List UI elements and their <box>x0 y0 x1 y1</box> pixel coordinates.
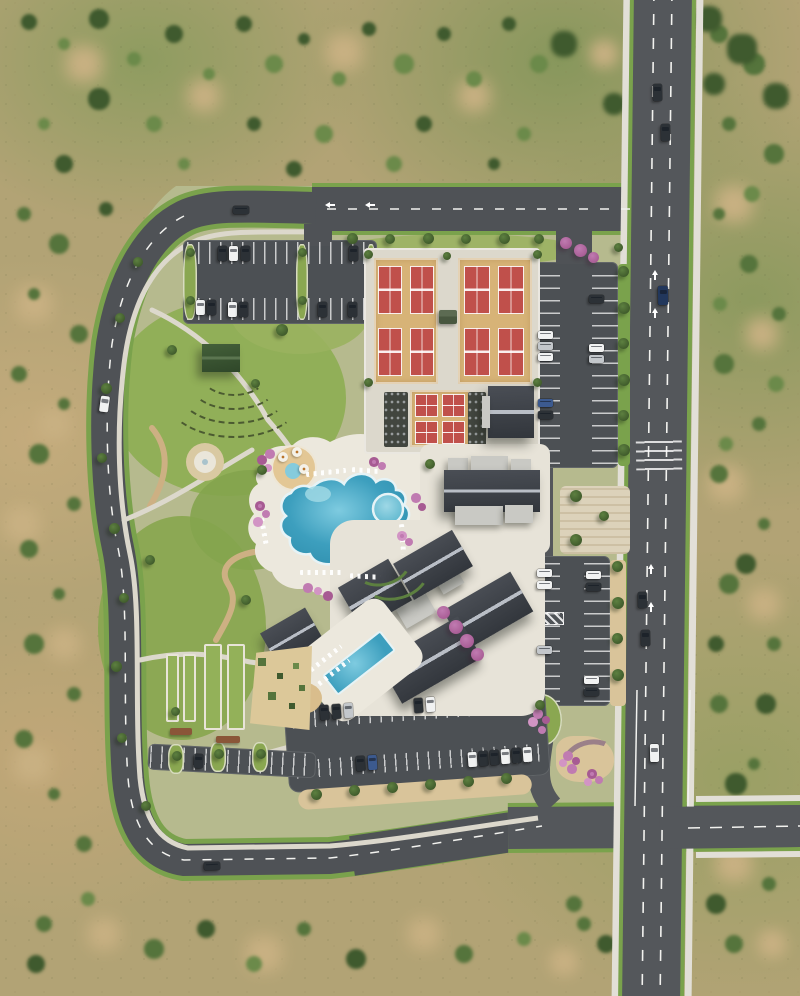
tree <box>425 459 435 469</box>
tree <box>167 345 177 355</box>
tree <box>111 661 122 672</box>
tree <box>97 453 107 463</box>
turn-arrow <box>650 604 652 612</box>
small-court <box>415 421 438 444</box>
roads-and-paths-layer <box>0 0 800 996</box>
car <box>204 862 220 871</box>
tennis-court <box>464 266 490 314</box>
flowering-tree <box>471 648 484 661</box>
car <box>413 698 423 714</box>
tree <box>612 669 624 681</box>
tree <box>614 243 623 252</box>
flower-bed <box>590 772 594 776</box>
car <box>355 756 365 772</box>
car <box>522 747 532 763</box>
tree <box>463 776 474 787</box>
tennis-court <box>464 328 490 376</box>
tennis-court <box>378 328 402 376</box>
car <box>207 300 216 315</box>
car <box>537 581 552 589</box>
flower-bed <box>566 754 570 758</box>
car <box>196 300 205 315</box>
car <box>467 752 477 768</box>
flowering-tree <box>588 252 599 263</box>
tree <box>534 234 544 244</box>
car <box>589 295 604 303</box>
flowering-tree <box>574 244 587 257</box>
tree <box>172 751 182 761</box>
tree <box>533 378 542 387</box>
tennis-court <box>378 266 402 314</box>
car <box>537 646 552 654</box>
flower-cluster <box>400 534 404 538</box>
car <box>367 755 377 771</box>
umbrella <box>292 447 302 457</box>
car <box>589 344 604 352</box>
car <box>425 697 435 713</box>
car <box>239 302 248 317</box>
tree <box>618 410 629 421</box>
tree <box>423 233 434 244</box>
courts-building-roof <box>488 386 534 438</box>
turn-arrow <box>367 204 375 206</box>
tree <box>171 707 180 716</box>
bocce-lane <box>204 644 222 730</box>
bocce-lane <box>183 654 196 722</box>
tree <box>425 779 436 790</box>
flower-cluster <box>414 496 418 500</box>
tree <box>618 266 629 277</box>
car <box>478 751 488 767</box>
turn-arrow <box>654 310 656 318</box>
tree <box>251 379 260 388</box>
umbrella <box>278 452 288 462</box>
car <box>228 302 237 317</box>
tree <box>145 555 155 565</box>
tree <box>256 749 266 759</box>
tree <box>618 374 630 386</box>
car <box>233 206 249 214</box>
car <box>318 302 327 317</box>
shade-canopy-seating <box>384 392 408 447</box>
tree <box>298 248 307 257</box>
aerial-site-plan <box>0 0 800 996</box>
car <box>511 748 521 764</box>
flowering-tree <box>437 606 450 619</box>
tree <box>186 248 195 257</box>
flower-cluster <box>306 586 310 590</box>
car <box>650 744 659 762</box>
tree <box>387 782 398 793</box>
tree <box>115 313 125 323</box>
car <box>586 571 601 579</box>
tree <box>612 633 623 644</box>
flower-cluster <box>258 504 262 508</box>
turn-arrow <box>327 204 335 206</box>
small-court <box>442 394 465 417</box>
flower-cluster <box>372 460 376 464</box>
tree <box>276 324 288 336</box>
car <box>218 246 227 261</box>
tree <box>618 444 630 456</box>
flower-island-bloom <box>536 712 540 716</box>
tree <box>533 250 542 259</box>
car <box>641 630 650 646</box>
car <box>589 355 604 363</box>
car <box>538 411 553 419</box>
amphitheater-seat-row <box>166 358 302 438</box>
turn-arrow <box>654 272 656 280</box>
car <box>348 302 357 317</box>
small-court <box>442 421 465 444</box>
tree <box>364 378 373 387</box>
car <box>538 331 553 339</box>
parkway-strip <box>618 264 630 466</box>
planter-box <box>170 728 192 735</box>
tree <box>385 234 395 244</box>
flowering-tree <box>560 237 572 249</box>
tennis-court <box>410 266 434 314</box>
car <box>500 749 510 765</box>
tree <box>347 233 358 244</box>
tree <box>570 490 582 502</box>
tree <box>499 233 510 244</box>
flowering-tree <box>449 620 463 634</box>
tree <box>117 733 127 743</box>
car <box>319 705 329 721</box>
pool-loungers <box>300 570 344 575</box>
tennis-court <box>410 328 434 376</box>
tree <box>349 785 360 796</box>
tree <box>612 561 623 572</box>
car <box>538 342 553 350</box>
car <box>538 353 553 361</box>
tree <box>311 789 322 800</box>
car <box>538 399 553 407</box>
car <box>229 246 238 261</box>
tree <box>364 250 373 259</box>
parking-stalls <box>187 242 373 264</box>
court-shade-structure <box>439 310 457 324</box>
fountain <box>202 459 208 465</box>
car <box>194 754 204 768</box>
car <box>489 750 499 766</box>
tree <box>186 296 195 305</box>
tree <box>612 597 624 609</box>
tree <box>535 700 545 710</box>
courts-building-wing <box>482 396 490 428</box>
car <box>343 703 353 719</box>
tree <box>618 338 629 349</box>
tree <box>461 234 471 244</box>
tennis-court <box>498 328 524 376</box>
car <box>349 246 358 261</box>
turn-arrow <box>650 566 652 574</box>
car <box>584 688 599 696</box>
car <box>241 246 250 261</box>
small-court <box>415 394 438 417</box>
car <box>661 124 670 141</box>
flowering-tree <box>460 634 474 648</box>
tree <box>257 465 267 475</box>
car <box>638 592 647 608</box>
tree <box>618 302 630 314</box>
tree <box>133 257 143 267</box>
clubhouse-south-wing <box>505 505 533 523</box>
tanning-shelf <box>305 486 331 502</box>
cross-street-sidewalk-n <box>696 798 800 799</box>
flower-cluster <box>268 452 272 456</box>
tree <box>141 801 151 811</box>
tree <box>241 595 251 605</box>
car <box>584 676 599 684</box>
tree <box>570 534 582 546</box>
tree <box>501 773 512 784</box>
tree <box>101 383 112 394</box>
tree <box>119 593 129 603</box>
car <box>586 583 601 591</box>
tree <box>599 511 609 521</box>
bocce-lane <box>227 644 245 730</box>
car <box>653 84 662 101</box>
clubhouse-south-wing <box>455 506 503 525</box>
tennis-court <box>498 266 524 314</box>
tree <box>109 523 120 534</box>
planter-box <box>216 736 240 743</box>
crosswalk-bars <box>636 436 683 471</box>
tree <box>298 296 307 305</box>
car <box>658 286 668 305</box>
car <box>537 569 552 577</box>
tree <box>214 749 224 759</box>
cross-street-sidewalk-s <box>696 854 800 855</box>
car <box>331 704 341 720</box>
dog-park <box>250 646 312 730</box>
tree <box>443 252 451 260</box>
